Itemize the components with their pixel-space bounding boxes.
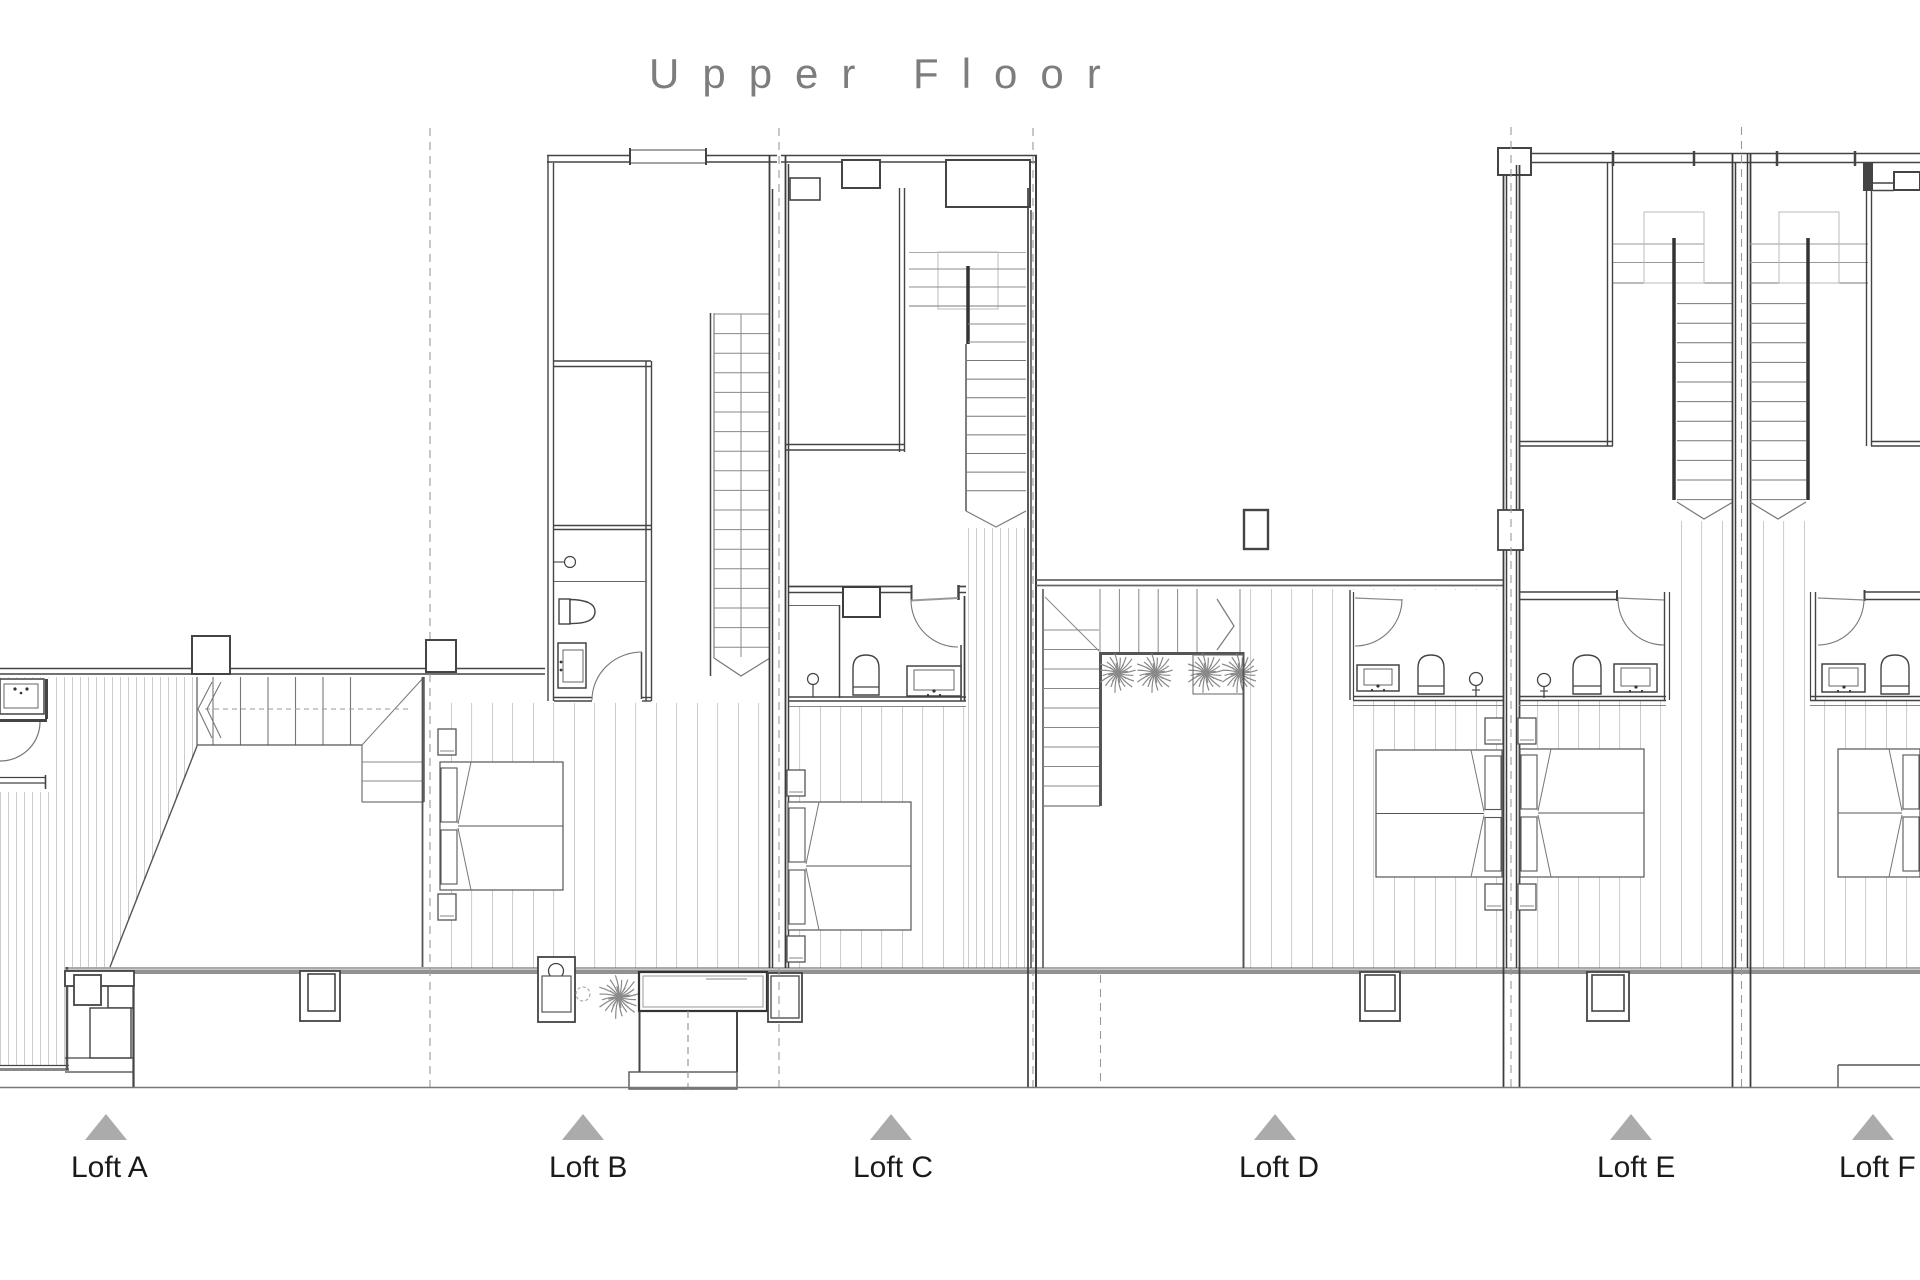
svg-text:Loft C: Loft C: [853, 1151, 933, 1184]
svg-text:Loft B: Loft B: [549, 1151, 627, 1184]
svg-text:Upper Floor: Upper Floor: [649, 50, 1124, 97]
svg-text:Loft A: Loft A: [71, 1151, 148, 1184]
svg-text:Loft D: Loft D: [1239, 1151, 1319, 1184]
svg-text:Loft E: Loft E: [1597, 1151, 1675, 1184]
svg-text:Loft F: Loft F: [1839, 1151, 1916, 1184]
